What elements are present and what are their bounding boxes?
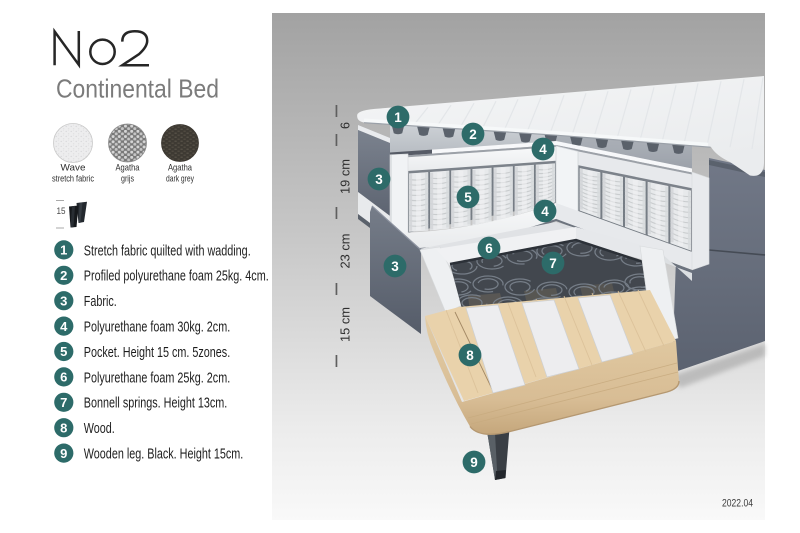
svg-text:2022.04: 2022.04: [722, 498, 753, 510]
svg-text:3: 3: [391, 259, 399, 274]
svg-text:6: 6: [339, 122, 353, 129]
svg-text:4: 4: [60, 319, 68, 334]
svg-text:Agatha: Agatha: [116, 163, 141, 174]
svg-text:Wood.: Wood.: [84, 420, 115, 437]
svg-text:1: 1: [394, 110, 402, 125]
svg-text:Agatha: Agatha: [168, 163, 193, 174]
svg-text:Pocket. Height 15 cm. 5zones.: Pocket. Height 15 cm. 5zones.: [84, 344, 230, 361]
svg-text:Profiled polyurethane foam 25k: Profiled polyurethane foam 25kg. 4cm.: [84, 268, 269, 285]
svg-text:8: 8: [60, 420, 67, 435]
svg-text:2: 2: [469, 127, 477, 142]
svg-text:3: 3: [60, 293, 67, 308]
svg-text:7: 7: [60, 395, 67, 410]
svg-text:23 cm: 23 cm: [339, 234, 353, 269]
svg-text:4: 4: [541, 204, 549, 219]
svg-text:9: 9: [470, 455, 478, 470]
svg-text:Wave: Wave: [61, 163, 86, 174]
svg-text:Fabric.: Fabric.: [84, 293, 117, 310]
svg-text:dark grey: dark grey: [166, 174, 194, 185]
svg-text:19 cm: 19 cm: [339, 159, 353, 194]
svg-text:5: 5: [464, 190, 472, 205]
svg-text:15 cm: 15 cm: [339, 307, 353, 342]
svg-text:6: 6: [60, 370, 67, 385]
svg-text:2: 2: [60, 268, 67, 283]
svg-text:Polyurethane foam 30kg. 2cm.: Polyurethane foam 30kg. 2cm.: [84, 319, 230, 336]
svg-text:Wooden leg. Black. Height 15cm: Wooden leg. Black. Height 15cm.: [84, 446, 244, 463]
svg-text:4: 4: [539, 142, 547, 157]
svg-text:5: 5: [60, 344, 67, 359]
svg-text:Bonnell springs. Height 13cm.: Bonnell springs. Height 13cm.: [84, 395, 228, 412]
svg-text:grijs: grijs: [121, 174, 134, 185]
svg-text:6: 6: [485, 241, 493, 256]
svg-text:8: 8: [466, 348, 474, 363]
svg-text:1: 1: [60, 243, 67, 258]
svg-text:Continental Bed: Continental Bed: [56, 74, 219, 104]
svg-text:stretch fabric: stretch fabric: [52, 174, 94, 185]
svg-text:15: 15: [57, 206, 66, 216]
svg-text:3: 3: [375, 172, 383, 187]
svg-text:7: 7: [549, 256, 557, 271]
svg-text:Stretch fabric quilted with wa: Stretch fabric quilted with wadding.: [84, 242, 251, 259]
svg-text:Polyurethane foam 25kg. 2cm.: Polyurethane foam 25kg. 2cm.: [84, 369, 230, 386]
svg-text:9: 9: [60, 446, 67, 461]
